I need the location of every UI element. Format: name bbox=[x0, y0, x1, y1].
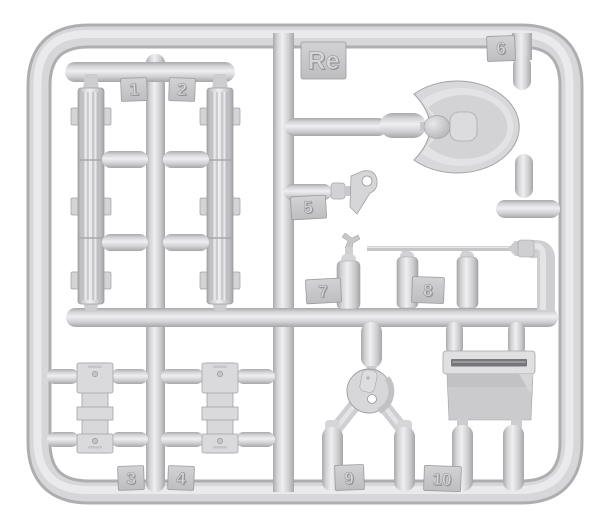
part-3-hatch-plate bbox=[47, 363, 148, 453]
plate4-rivet bbox=[217, 371, 222, 376]
tab-3-label: 3 bbox=[126, 469, 136, 488]
tab-10-label: 10 bbox=[432, 470, 452, 490]
box-body-shadowband bbox=[448, 374, 532, 387]
connector-pill bbox=[163, 234, 209, 251]
plate3-rivet bbox=[92, 371, 97, 376]
plate4-embossed-mark bbox=[213, 366, 227, 369]
plate4-pill bbox=[161, 369, 204, 384]
connector-pill bbox=[102, 234, 148, 251]
connector-pill bbox=[102, 151, 148, 168]
scoop-socket-ball bbox=[424, 116, 450, 139]
plate3-pill bbox=[47, 432, 79, 447]
tab-4-label: 4 bbox=[176, 469, 187, 488]
bracket-block bbox=[331, 183, 345, 199]
tab-re: Re Re bbox=[301, 42, 346, 79]
tab-8: 8 8 bbox=[412, 276, 445, 303]
slat1-top-stem bbox=[83, 74, 99, 89]
tab-8-label: 8 bbox=[423, 281, 433, 300]
scoop-center-tab bbox=[450, 112, 477, 141]
part-10-stowage-box bbox=[443, 322, 535, 491]
tab-4: 4 4 bbox=[168, 466, 195, 491]
slat2-top-stem bbox=[212, 74, 228, 89]
part-4-hatch-plate bbox=[161, 363, 275, 453]
runner-middle-horizontal bbox=[66, 308, 558, 327]
rod-collar bbox=[518, 240, 534, 257]
tab-9-label: 9 bbox=[344, 469, 354, 488]
plate4-embossed-mark bbox=[213, 446, 227, 449]
gate-pill-scoop-top bbox=[513, 56, 531, 90]
plate3-pill bbox=[111, 432, 148, 447]
tab-1-label: 1 bbox=[129, 80, 139, 99]
tab-9: 9 9 bbox=[335, 464, 365, 490]
tab-2-label: 2 bbox=[177, 80, 187, 99]
tab-3: 3 3 bbox=[118, 466, 145, 491]
gate-pill-scoop-bottom bbox=[515, 154, 533, 198]
tab-10: 10 10 bbox=[424, 465, 462, 491]
plate3-embossed-mark bbox=[88, 366, 102, 369]
part-1-slat-panel bbox=[71, 74, 111, 312]
tab-5-label: 5 bbox=[303, 198, 313, 217]
plate4-pill bbox=[236, 369, 275, 384]
sprue-photo: Re Re 1 1 2 2 3 3 4 4 5 bbox=[0, 0, 610, 530]
part-2-slat-panel bbox=[200, 74, 240, 312]
tab-2: 2 2 bbox=[169, 78, 196, 102]
plate4-pill bbox=[161, 432, 204, 447]
bracket-hole bbox=[362, 176, 372, 186]
tab-5: 5 5 bbox=[290, 195, 326, 220]
runner-left-vertical bbox=[146, 54, 165, 492]
runner-scoop-arm bbox=[285, 118, 387, 136]
runner-right-horizontal bbox=[496, 200, 560, 218]
plate3-embossed-mark bbox=[88, 446, 102, 449]
plate3-pill bbox=[111, 369, 148, 384]
tab-7: 7 7 bbox=[305, 278, 341, 304]
plate3-pill bbox=[47, 369, 79, 384]
plate3-rivet bbox=[92, 438, 97, 443]
connector-pill bbox=[163, 151, 209, 168]
tab-re-label: Re bbox=[308, 47, 340, 75]
tab-6-label: 6 bbox=[496, 39, 506, 58]
cylinder-body bbox=[457, 257, 478, 308]
plate4-rivet bbox=[217, 438, 222, 443]
part-8-cylinders-rod bbox=[367, 240, 534, 308]
box-post-right bbox=[503, 425, 524, 491]
rod-highlight bbox=[367, 247, 511, 248]
fork-post-right bbox=[394, 427, 415, 491]
tab-1: 1 1 bbox=[121, 78, 148, 102]
plate4-pill bbox=[236, 432, 275, 447]
hub-dot bbox=[366, 376, 370, 380]
part-6-scoop bbox=[414, 81, 519, 173]
plate3-band bbox=[77, 407, 113, 420]
tab-6: 6 6 bbox=[487, 36, 516, 62]
runner-central-vertical bbox=[273, 33, 294, 492]
disc-hole bbox=[368, 395, 377, 404]
tab-7-label: 7 bbox=[318, 282, 328, 301]
plate4-band bbox=[202, 407, 238, 420]
gate-pill-part9 bbox=[361, 322, 382, 368]
box-slot-inner bbox=[453, 361, 526, 363]
part-5-bracket bbox=[331, 171, 377, 214]
runner-scoop-arm-pill bbox=[380, 113, 426, 138]
sprue-drawing: Re Re 1 1 2 2 3 3 4 4 5 bbox=[0, 0, 610, 530]
